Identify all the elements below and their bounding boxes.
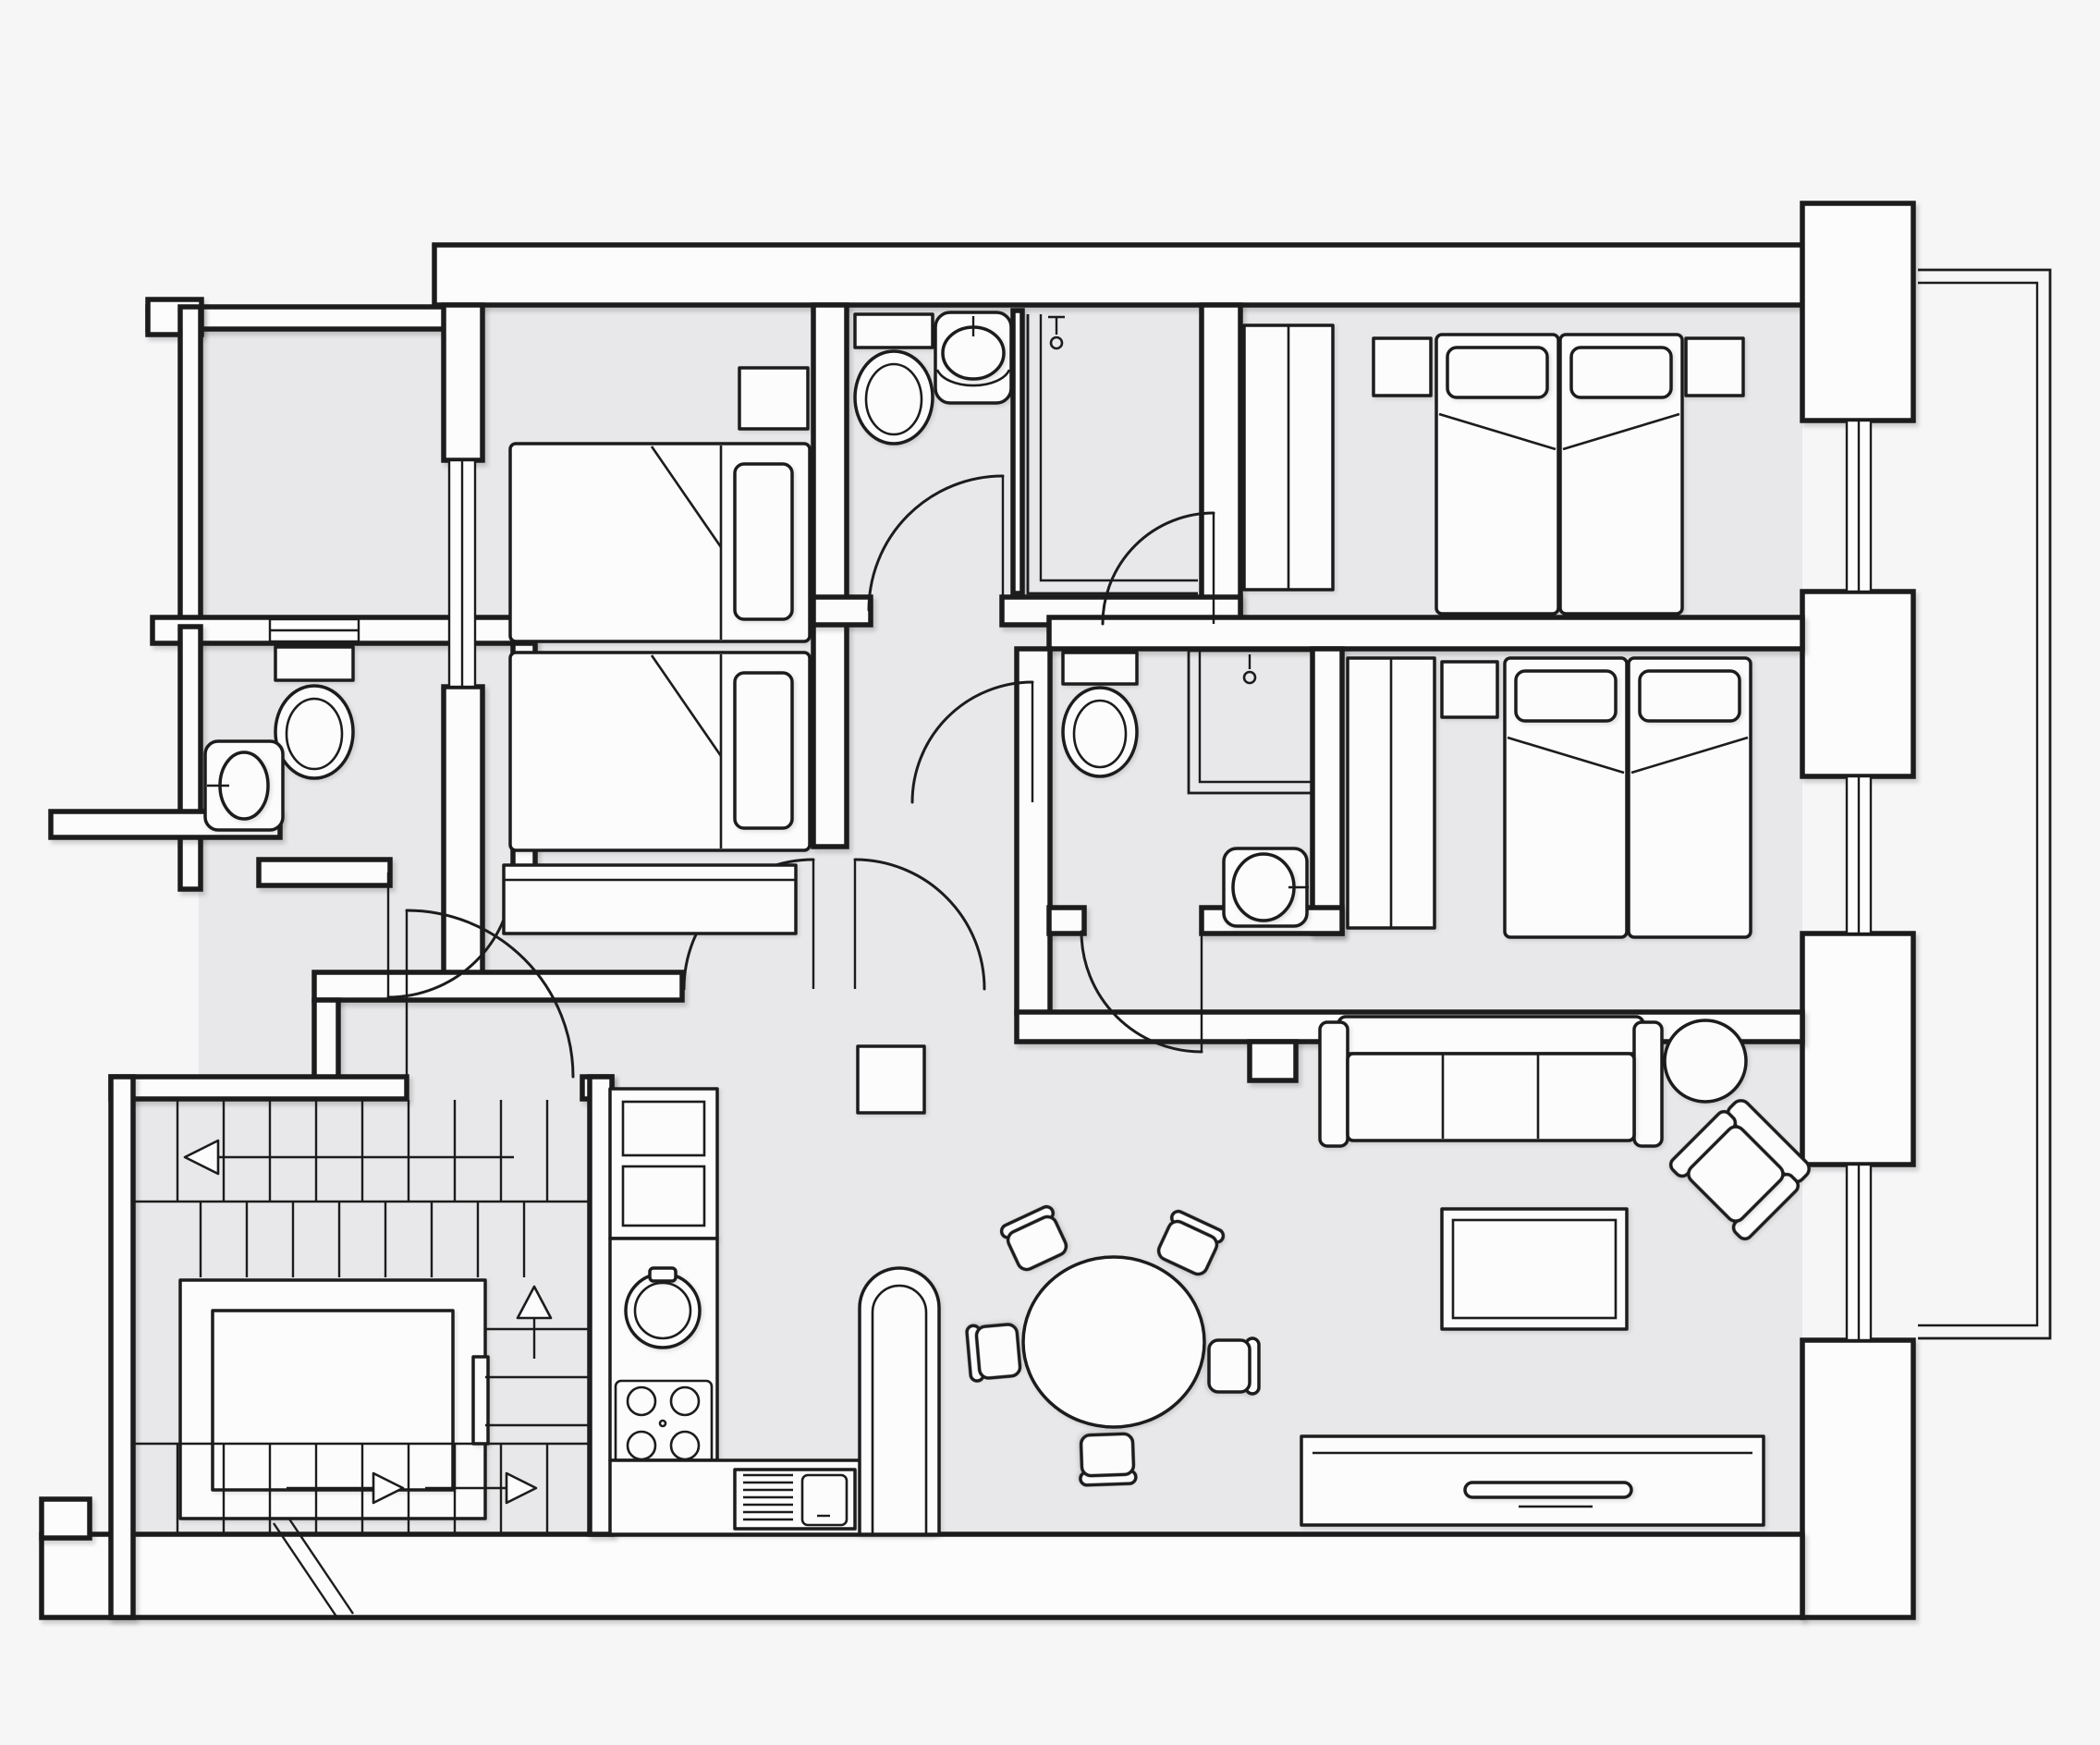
column-east-2 xyxy=(1802,592,1913,776)
terrace-edge-outer xyxy=(1918,270,2050,1338)
bottom-wall-end-cap xyxy=(42,1499,90,1538)
bedroom2-nightstand-left xyxy=(1374,338,1431,396)
stairwell-top-wall-left xyxy=(111,1077,407,1099)
kitchen-faucet xyxy=(650,1268,676,1281)
bedroom2-bedroom3-divider xyxy=(1049,617,1802,649)
sofa-arm-left xyxy=(1320,1022,1348,1146)
floor-plan-page xyxy=(0,0,2100,1745)
bathroom2-toilet-tank xyxy=(1063,653,1137,684)
stairwell-left-wall xyxy=(111,1077,133,1617)
top-exterior-wall xyxy=(434,245,1821,305)
structural-pillar xyxy=(858,1046,924,1113)
bottom-exterior-wall xyxy=(42,1534,1802,1617)
coffee-table xyxy=(1442,1209,1627,1329)
bedroom2-pillow-left xyxy=(1447,348,1547,397)
dining-chair-w-seat xyxy=(976,1324,1021,1379)
twin-bed-1-pillow xyxy=(735,464,792,619)
wc-bottom-wall xyxy=(259,860,390,885)
dining-chair-e-seat xyxy=(1209,1340,1250,1392)
bedroom3-pillow-left xyxy=(1516,671,1616,721)
tv-console xyxy=(1301,1436,1764,1525)
kitchen-tall-unit xyxy=(610,1089,717,1239)
dining-table xyxy=(1023,1257,1204,1427)
bathroom1-bottom-wall-left xyxy=(813,597,871,625)
bathroom1-divider-wall xyxy=(1013,311,1022,593)
column-southeast xyxy=(1802,1340,1913,1617)
bathroom2-sink-basin xyxy=(1233,854,1294,921)
twin-bed-2-pillow xyxy=(735,673,792,828)
bedroom1-bottom-wall xyxy=(314,972,682,1000)
bedroom2-left-wall xyxy=(1202,305,1240,625)
side-table xyxy=(1665,1020,1746,1102)
vestibule-wall-stub xyxy=(314,1000,338,1080)
sofa-back xyxy=(1338,1017,1643,1054)
bedroom1-left-wall-upper xyxy=(444,305,482,460)
bedroom3-pillow-right xyxy=(1640,671,1740,721)
tv-screen xyxy=(1465,1483,1631,1497)
terrace-edge-inner xyxy=(1918,283,2037,1325)
bathroom1-toilet-tank xyxy=(855,314,933,348)
column-northeast xyxy=(1802,203,1913,421)
bedroom2-nightstand-right xyxy=(1686,338,1743,396)
living-wall-stub xyxy=(1250,1042,1296,1080)
bedroom1-dresser xyxy=(504,865,796,934)
bedroom1-left-wall-lower xyxy=(444,687,482,992)
sofa-seat xyxy=(1348,1054,1634,1141)
bedroom3-nightstand xyxy=(1442,662,1497,717)
wc-toilet-tank xyxy=(275,647,353,680)
bathroom2-right-wall xyxy=(1312,649,1342,934)
column-east-3 xyxy=(1802,934,1913,1165)
balcony-floor xyxy=(199,328,444,617)
bathroom2-bottom-wall-left xyxy=(1049,908,1084,934)
dining-chair-s-seat xyxy=(1081,1434,1134,1476)
corridor-wall xyxy=(813,305,847,847)
sofa-arm-right xyxy=(1634,1022,1662,1146)
floor-plan xyxy=(0,0,2100,1745)
elevator-door xyxy=(473,1357,488,1444)
balcony-left-railing xyxy=(180,307,201,627)
bedroom1-nightstand xyxy=(739,368,808,429)
dishwasher-grille xyxy=(743,1475,793,1519)
kitchen-sink xyxy=(626,1274,700,1348)
elevator-car xyxy=(213,1311,453,1490)
wc-left-wall xyxy=(180,627,201,889)
bedroom2-pillow-right xyxy=(1571,348,1671,397)
